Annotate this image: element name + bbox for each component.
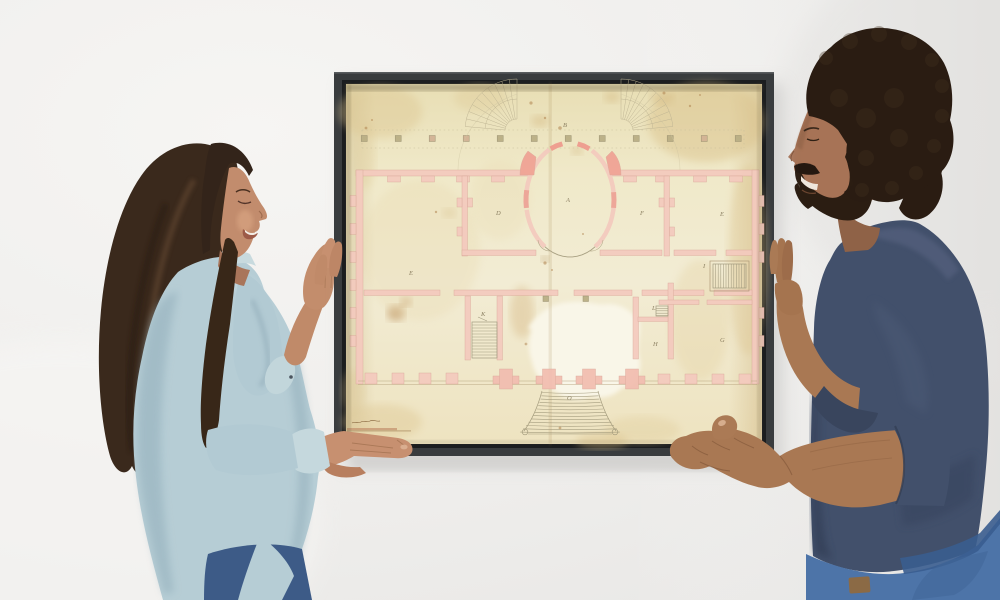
svg-text:D: D <box>495 210 501 217</box>
svg-text:A: A <box>565 197 570 204</box>
svg-text:G: G <box>720 337 725 344</box>
svg-text:H: H <box>652 341 658 348</box>
svg-text:E: E <box>719 211 724 218</box>
svg-text:E: E <box>408 270 413 277</box>
svg-text:K: K <box>480 311 486 318</box>
svg-text:L: L <box>651 305 656 312</box>
svg-text:O: O <box>567 395 572 402</box>
svg-text:B: B <box>563 122 567 129</box>
